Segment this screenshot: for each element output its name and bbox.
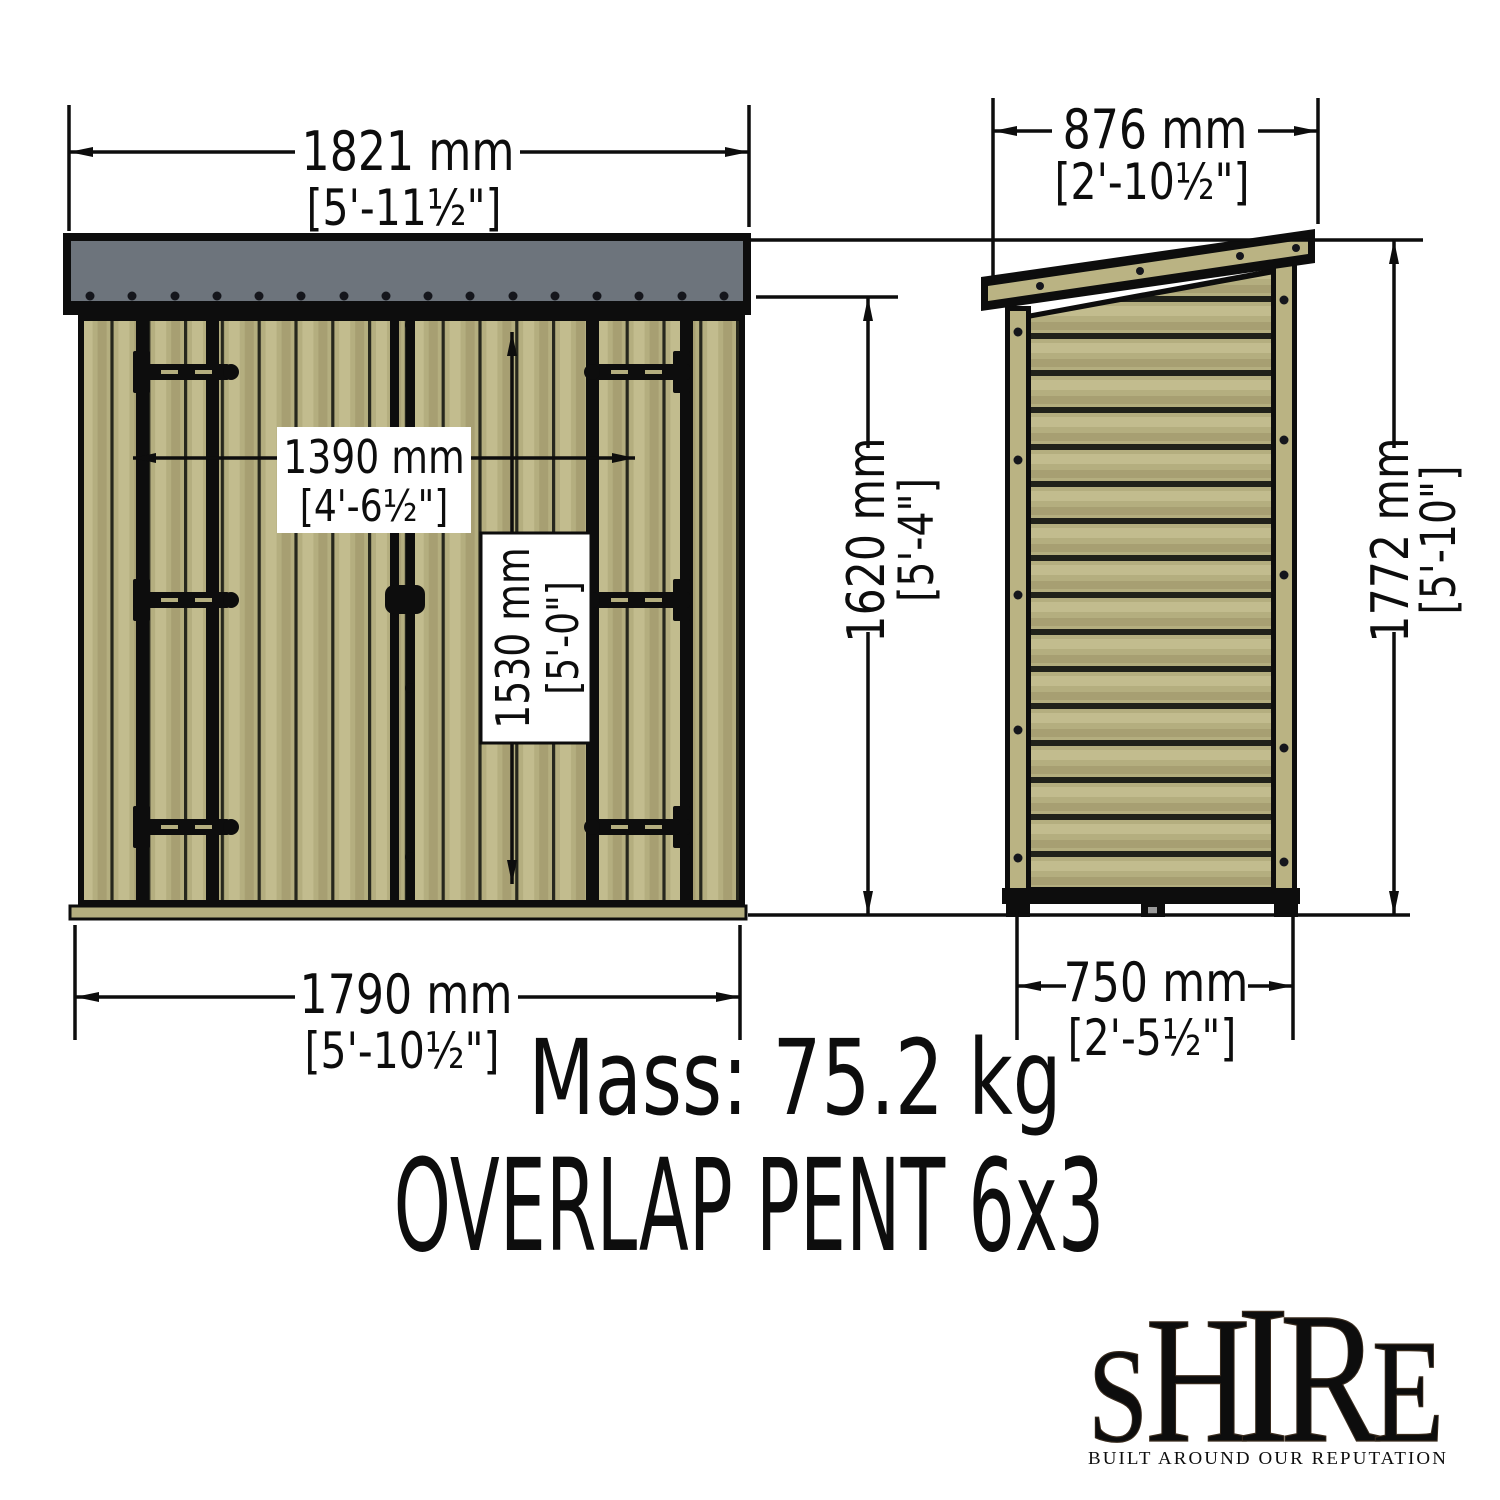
shed-technical-drawing: 1821 mm [5'-11½"] 876 mm [2'-10½"] 1390 … [0, 0, 1500, 1500]
dim-overall-width-imperial: [5'-11½"] [307, 179, 502, 237]
dim-base-depth-mm: 750 mm [1064, 951, 1249, 1014]
shire-logo: S H I R E BUILT AROUND OUR REPUTATION [1088, 1264, 1448, 1484]
side-elevation [981, 229, 1315, 917]
dim-overall-depth-mm: 876 mm [1063, 98, 1248, 161]
side-cladding [1011, 271, 1291, 887]
dim-door-width-imperial: [4'-6½"] [300, 482, 449, 532]
front-elevation [63, 233, 751, 919]
dim-overall-height-imperial: [5'-10"] [1411, 466, 1467, 615]
dim-door-height-mm: 1530 mm [486, 547, 540, 728]
dim-base-width-mm: 1790 mm [300, 963, 513, 1026]
dim-overall-depth-imperial: [2'-10½"] [1055, 153, 1250, 211]
logo-tagline: BUILT AROUND OUR REPUTATION [1088, 1448, 1448, 1468]
front-roof-felt [71, 241, 743, 301]
front-base-rail [70, 906, 746, 919]
dim-overall-width-mm: 1821 mm [302, 120, 515, 183]
dim-door-height-imperial: [5'-0"] [539, 581, 589, 695]
dim-eaves-height-mm: 1620 mm [837, 437, 897, 642]
dim-eaves-height-imperial: [5'-4"] [889, 478, 945, 602]
drawing-canvas: 1821 mm [5'-11½"] 876 mm [2'-10½"] 1390 … [0, 0, 1500, 1500]
dim-base-width-imperial: [5'-10½"] [305, 1022, 500, 1080]
dim-door-width-mm: 1390 mm [283, 430, 464, 484]
dim-base-depth-imperial: [2'-5½"] [1068, 1009, 1237, 1067]
mass-value: Mass: 75.2 kg [528, 1017, 1061, 1139]
side-base-rail [1002, 888, 1300, 904]
door-handle [385, 585, 425, 614]
product-title: OVERLAP PENT 6x3 [394, 1131, 1105, 1281]
